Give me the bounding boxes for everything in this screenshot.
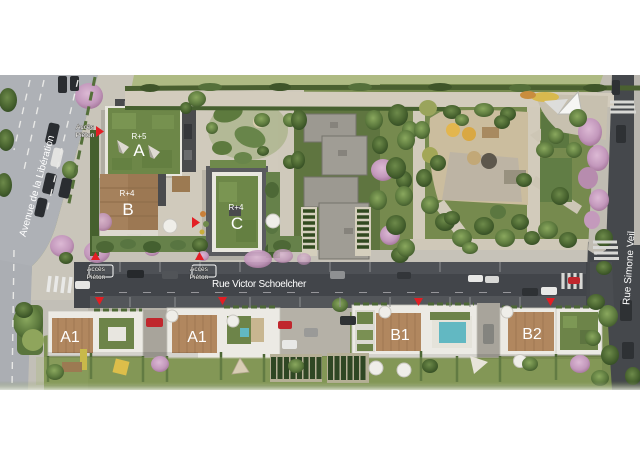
svg-text:B1: B1: [390, 327, 410, 344]
svg-text:Rue Victor Schoelcher: Rue Victor Schoelcher: [212, 279, 307, 290]
svg-text:Accès: Accès: [190, 266, 209, 273]
svg-text:B2: B2: [522, 326, 542, 343]
svg-text:B: B: [122, 200, 133, 219]
svg-text:Accès: Accès: [87, 266, 106, 273]
svg-text:A1: A1: [187, 329, 207, 346]
svg-text:R+4: R+4: [229, 203, 244, 212]
svg-text:A1: A1: [60, 329, 80, 346]
svg-text:Accès: Accès: [76, 124, 95, 131]
svg-text:R+5: R+5: [132, 132, 147, 141]
svg-text:Piéton: Piéton: [190, 274, 209, 281]
svg-text:C: C: [231, 214, 243, 233]
svg-text:R+4: R+4: [120, 189, 135, 198]
svg-text:Piéton: Piéton: [87, 274, 106, 281]
svg-text:A: A: [133, 141, 145, 160]
svg-text:Piéton: Piéton: [76, 132, 95, 139]
